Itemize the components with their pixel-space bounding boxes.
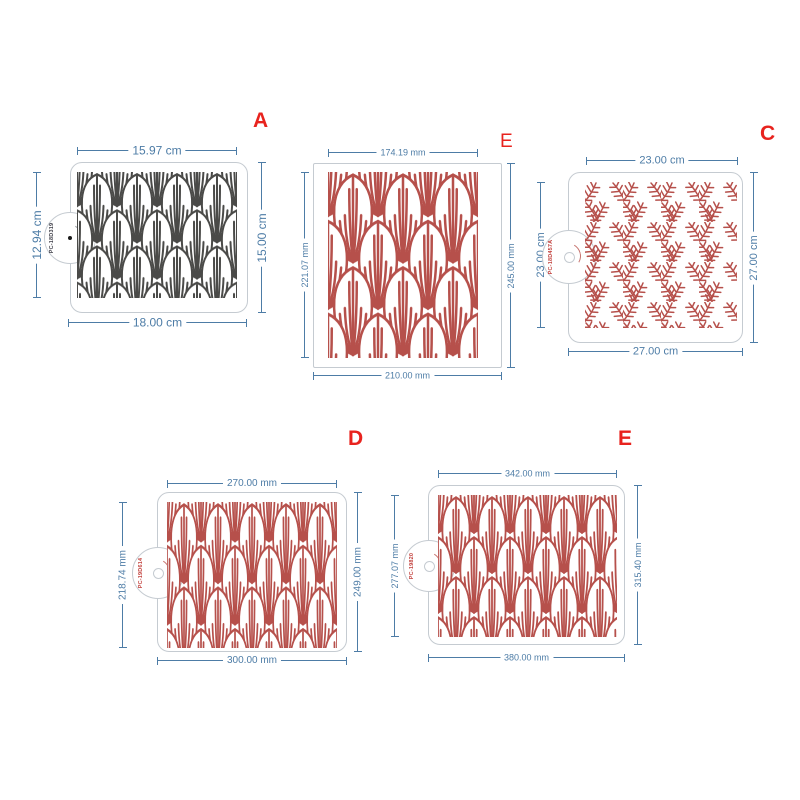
dim-bottom-label: 380.00 mm [500,653,553,663]
stencil-e-dim-left: 277.07 mm [394,495,395,637]
dim-bottom-label: 18.00 cm [129,315,186,329]
dim-left-label: 218.74 mm [118,546,129,604]
stencil-c-dim-left: 23.00 cm [540,182,541,328]
stencil-e-dim-bottom: 380.00 mm [428,657,625,658]
stencil-d-frame: PC-19D614 [157,492,347,652]
dim-top-label: 23.00 cm [635,155,688,167]
stencil-c-dim-right: 27.00 cm [753,172,754,343]
dim-right-label: 27.00 cm [748,231,760,284]
stencil-d-dim-left: 218.74 mm [122,502,123,648]
stencil-e-dim-top: 342.00 mm [438,473,617,474]
stencil-b-pattern [328,172,478,358]
dim-left-label: 277.07 mm [390,539,400,592]
stencil-c-dim-bottom: 27.00 cm [568,351,743,352]
stencil-c-tab-hole [564,252,575,263]
stencil-d-tab-hole [153,568,164,579]
dim-right-label: 245.00 mm [506,239,516,292]
stencil-c-pattern [585,182,737,328]
stencil-d-dim-top: 270.00 mm [167,483,337,484]
stencil-a-frame: PC-18D319 [70,162,248,313]
stencil-a-dim-left: 12.94 cm [36,172,37,298]
stencil-e-pattern [438,495,617,637]
product-diagram-canvas: A PC-18D319 15.97 cm 18.00 cm 12.94 cm 1… [0,0,800,800]
stencil-a-dim-right: 15.00 cm [261,162,262,313]
stencil-b-dim-top: 174.19 mm [328,152,478,153]
dim-top-label: 342.00 mm [501,469,554,479]
dim-bottom-label: 210.00 mm [381,371,434,381]
stencil-d-product-code: PC-19D614 [138,551,144,595]
stencil-a-dim-top: 15.97 cm [77,150,237,151]
stencil-a-letter: A [253,110,268,131]
dim-left-label: 12.94 cm [30,206,44,263]
dim-right-label: 15.00 cm [255,209,269,266]
stencil-d-pattern [167,502,337,648]
stencil-a-tab-hole [68,236,72,240]
dim-top-label: 270.00 mm [223,478,281,489]
dim-right-label: 249.00 mm [353,543,364,601]
stencil-a-pattern [77,172,237,298]
dim-right-label: 315.40 mm [633,538,643,591]
stencil-e-tab-hole [424,561,435,572]
stencil-b-dim-bottom: 210.00 mm [313,375,502,376]
stencil-b-dim-right: 245.00 mm [510,163,511,368]
stencil-b-frame [313,163,502,368]
dim-bottom-label: 27.00 cm [629,346,682,358]
dim-bottom-label: 300.00 mm [223,655,281,666]
stencil-c-product-code: PC-18D457A [548,234,554,280]
dim-left-label: 221.07 mm [300,238,310,291]
stencil-e-frame: PC-19820 [428,485,625,645]
stencil-c-dim-top: 23.00 cm [586,160,738,161]
stencil-c-frame: PC-18D457A [568,172,743,343]
stencil-d-letter: D [348,428,363,449]
stencil-c-letter: C [760,123,775,144]
stencil-b-letter: E [500,132,513,151]
stencil-e-product-code: PC-19820 [409,544,415,588]
stencil-b-dim-left: 221.07 mm [304,172,305,358]
stencil-d-dim-bottom: 300.00 mm [157,660,347,661]
stencil-e-letter: E [618,428,632,449]
stencil-d-dim-right: 249.00 mm [357,492,358,652]
stencil-e-dim-right: 315.40 mm [637,485,638,645]
dim-top-label: 15.97 cm [128,143,185,157]
stencil-a-product-code: PC-18D319 [49,216,55,260]
stencil-a-dim-bottom: 18.00 cm [68,322,247,323]
dim-top-label: 174.19 mm [376,148,429,158]
